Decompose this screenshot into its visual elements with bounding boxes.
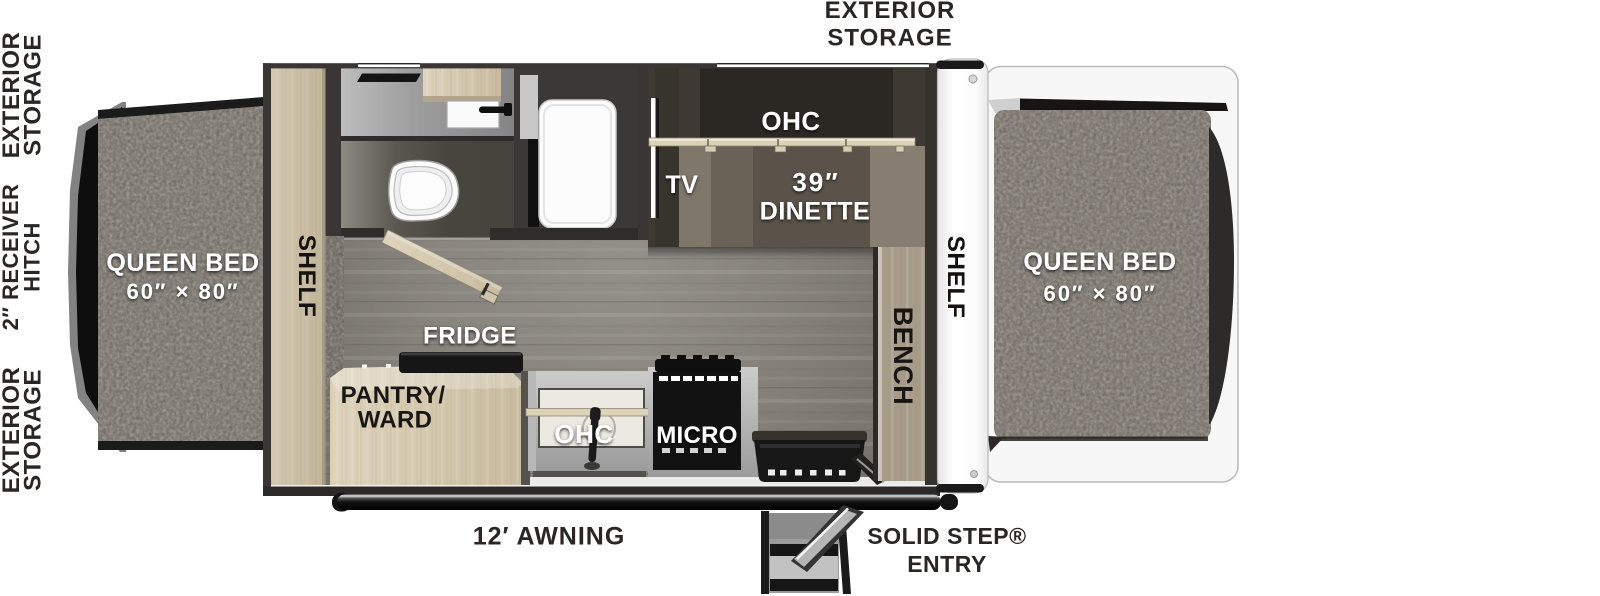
svg-text:60″ × 80″: 60″ × 80″ <box>1043 281 1156 306</box>
svg-text:SOLID STEP®: SOLID STEP® <box>867 523 1026 549</box>
svg-text:OHC: OHC <box>761 106 820 136</box>
svg-text:MICRO: MICRO <box>656 422 738 449</box>
svg-text:PANTRY/: PANTRY/ <box>341 382 446 409</box>
svg-text:STORAGE: STORAGE <box>827 25 952 52</box>
svg-text:STORAGE: STORAGE <box>20 369 47 491</box>
svg-text:39″: 39″ <box>792 167 839 197</box>
svg-text:QUEEN BED: QUEEN BED <box>106 249 259 277</box>
svg-text:TV: TV <box>666 171 699 199</box>
svg-text:OHC: OHC <box>554 419 613 449</box>
svg-text:QUEEN BED: QUEEN BED <box>1023 248 1176 276</box>
svg-text:DINETTE: DINETTE <box>760 198 870 226</box>
svg-text:EXTERIOR: EXTERIOR <box>825 0 956 24</box>
svg-text:12′ AWNING: 12′ AWNING <box>473 523 626 551</box>
svg-text:SHELF: SHELF <box>293 235 320 318</box>
svg-text:HITCH: HITCH <box>20 222 45 292</box>
svg-text:ENTRY: ENTRY <box>907 551 987 577</box>
svg-text:WARD: WARD <box>358 407 433 434</box>
svg-text:STORAGE: STORAGE <box>20 34 47 156</box>
svg-text:SHELF: SHELF <box>942 236 969 319</box>
svg-text:60″ × 80″: 60″ × 80″ <box>126 279 239 304</box>
svg-text:FRIDGE: FRIDGE <box>423 323 517 350</box>
svg-text:BENCH: BENCH <box>888 307 918 406</box>
